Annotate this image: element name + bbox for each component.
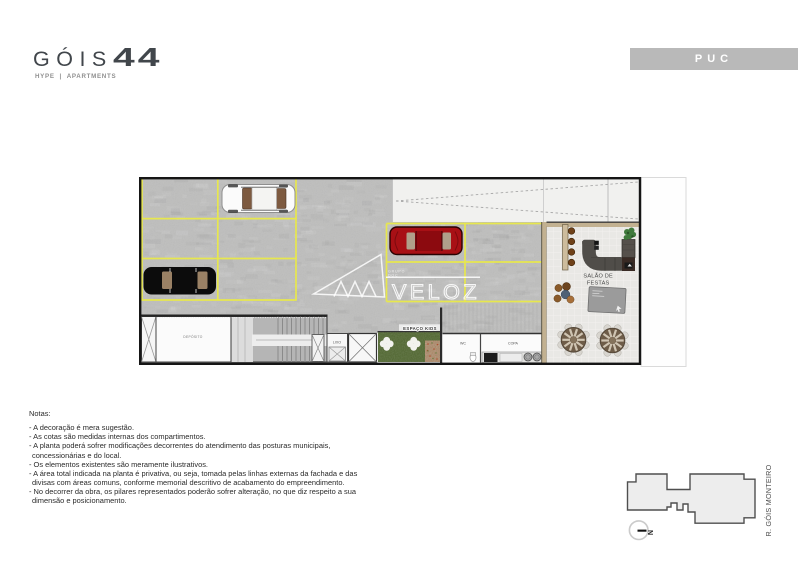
svg-text:LIXO: LIXO: [333, 341, 341, 345]
svg-text:N: N: [646, 530, 653, 535]
svg-text:DOC: DOC: [388, 274, 398, 278]
svg-text:COPA: COPA: [508, 342, 519, 346]
svg-text:DEPÓSITO: DEPÓSITO: [183, 334, 203, 339]
svg-text:ESPAÇO KIDS: ESPAÇO KIDS: [403, 326, 437, 331]
svg-text:WC: WC: [460, 342, 466, 346]
svg-text:R. GÓIS MONTEIRO: R. GÓIS MONTEIRO: [764, 464, 773, 536]
svg-text:SALÃO DE: SALÃO DE: [583, 272, 613, 279]
svg-text:VELOZ: VELOZ: [392, 280, 480, 304]
svg-text:FESTAS: FESTAS: [587, 281, 610, 287]
